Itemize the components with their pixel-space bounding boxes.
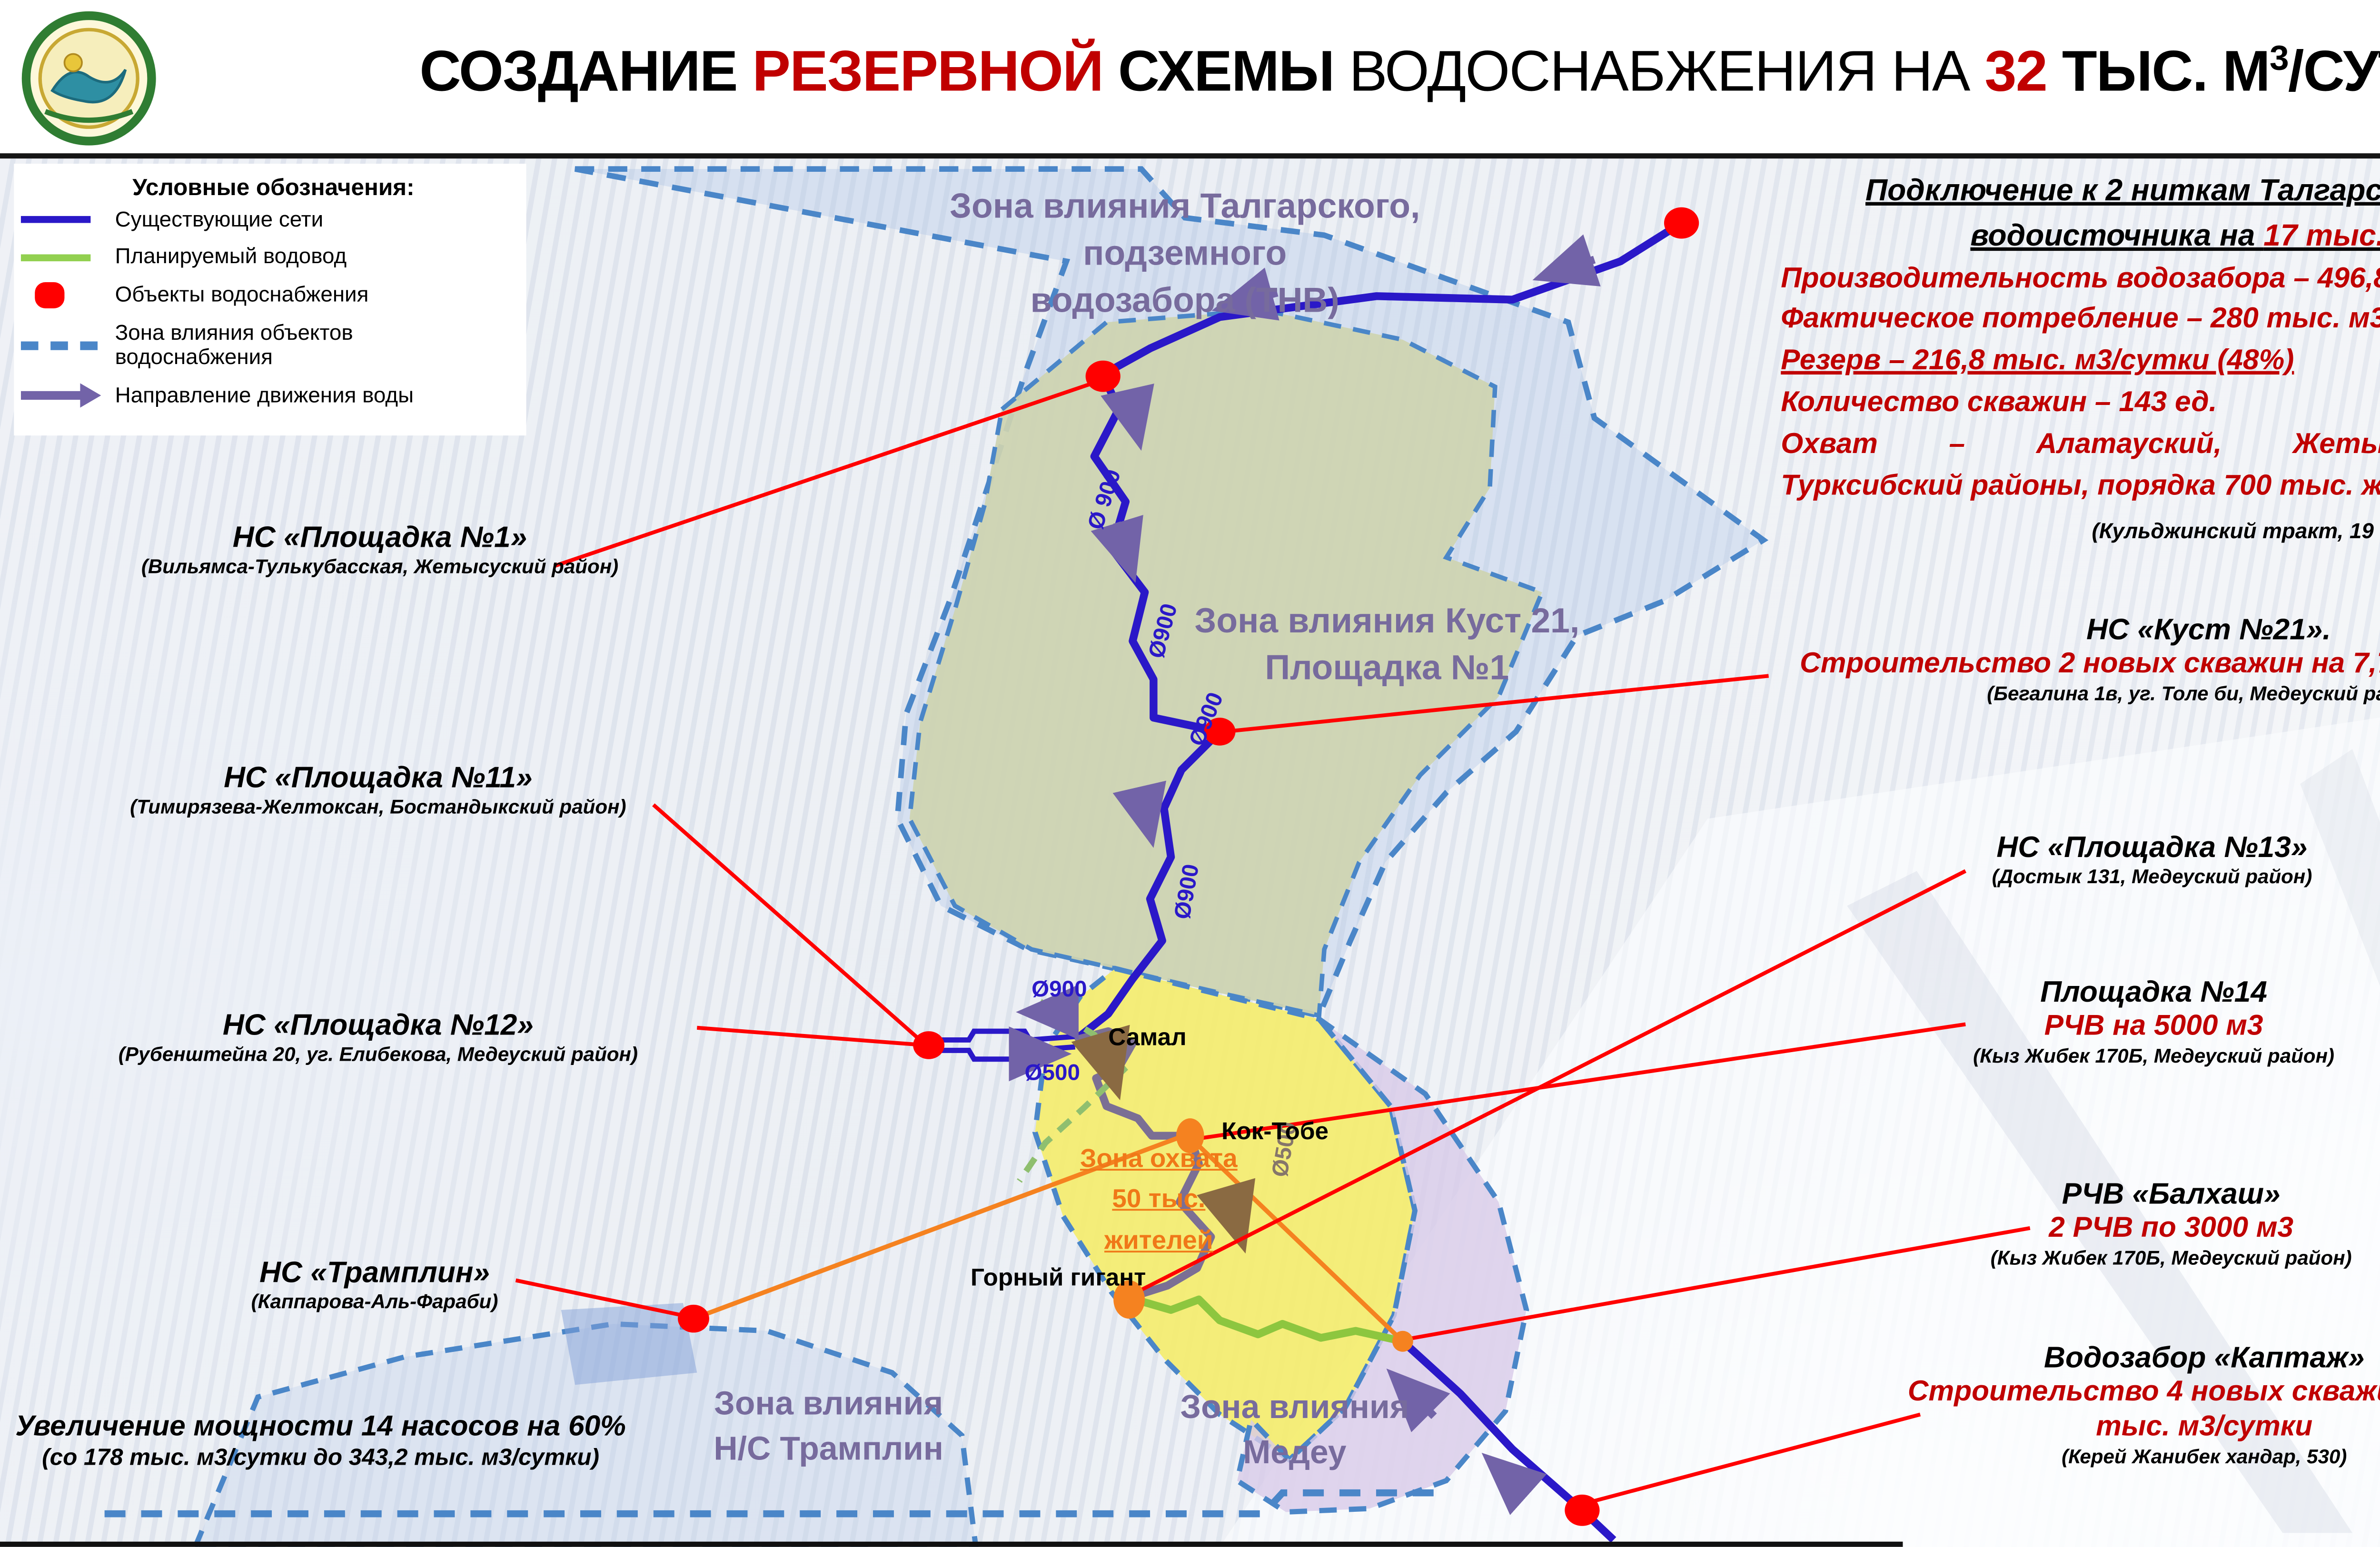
- coverage-line: жителей: [1104, 1225, 1213, 1255]
- zone-label-line: Зона влияния: [714, 1387, 943, 1423]
- title-word: ТЫС. М: [2047, 39, 2270, 103]
- callout-title: НС «Трамплин»: [192, 1256, 558, 1291]
- zone-label-tramplin: Зона влияния Н/С Трамплин: [676, 1383, 981, 1473]
- callout-subtitle: (Достык 131, Медеуский район): [1908, 867, 2380, 892]
- zone-label-medeu: Зона влияния Медеу: [1164, 1387, 1425, 1476]
- bottom-divider: [0, 1542, 1903, 1547]
- callout-highlight: 2 РЧВ по 3000 м3: [1952, 1213, 2380, 1247]
- zone-label-line: Зона влияния Куст 21,: [1195, 603, 1580, 641]
- legend-item-flow: Направление движения воды: [21, 383, 526, 408]
- callout-ns-tramplin: НС «Трамплин» (Каппарова-Аль-Фараби): [192, 1256, 558, 1316]
- callout-subtitle: (Кыз Жибек 170Б, Медеуский район): [1952, 1248, 2380, 1273]
- callout-title: Площадка №14: [1925, 975, 2380, 1011]
- info-note: (Кульджинский тракт, 19 км): [1781, 519, 2380, 543]
- info-coverage-1: Охват – Алатауский, Жетысуский, Медеуски…: [1781, 425, 2380, 467]
- callout-title: НС «Площадка №1»: [101, 521, 658, 557]
- info-consumption: Фактическое потребление – 280 тыс. м3/су…: [1781, 300, 2380, 342]
- flow-arrow-swatch: [21, 383, 115, 407]
- callout-highlight: РЧВ на 5000 м3: [1925, 1011, 2380, 1045]
- object-dot-swatch: [21, 282, 115, 308]
- page-title: СОЗДАНИЕ РЕЗЕРВНОЙ СХЕМЫ ВОДОСНАБЖЕНИЯ Н…: [174, 39, 2380, 105]
- callout-ns-ploshadka-11: НС «Площадка №11» (Тимирязева-Желтоксан,…: [90, 761, 665, 822]
- callout-title: НС «Куст №21».: [1751, 613, 2380, 649]
- pump-upgrade-note: Увеличение мощности 14 насосов на 60% (с…: [10, 1411, 631, 1470]
- pipe-diameter-label: Ø500: [1024, 1059, 1080, 1085]
- zone-label-line: Зона влияния Талгарского, подземного: [950, 188, 1420, 273]
- callout-vodozabor-kaptazh: Водозабор «Каптаж» Строительство 4 новых…: [1891, 1341, 2380, 1471]
- info-heading-line2: водоисточника на: [1970, 218, 2263, 253]
- title-number-red: 32: [1984, 39, 2047, 103]
- title-superscript: 3: [2270, 40, 2288, 79]
- zone-label-line: водозабора (ТНВ): [1031, 282, 1339, 321]
- city-emblem-logo: [21, 10, 157, 147]
- header: СОЗДАНИЕ РЕЗЕРВНОЙ СХЕМЫ ВОДОСНАБЖЕНИЯ Н…: [0, 0, 2380, 153]
- legend-item-planned: Планируемый водовод: [21, 245, 526, 270]
- callout-subtitle: (Каппарова-Аль-Фараби): [192, 1291, 558, 1317]
- slide: СОЗДАНИЕ РЕЗЕРВНОЙ СХЕМЫ ВОДОСНАБЖЕНИЯ Н…: [0, 0, 2380, 1547]
- zone-label-line: Зона влияния: [1180, 1390, 1409, 1427]
- info-heading-line1: Подключение к 2 ниткам Талгарского подзе…: [1865, 172, 2380, 207]
- header-divider: [0, 153, 2380, 158]
- info-reserve: Резерв – 216,8 тыс. м3/сутки (48%): [1781, 342, 2380, 384]
- legend-title: Условные обозначения:: [132, 174, 526, 200]
- callout-rchv-balkhash: РЧВ «Балхаш» 2 РЧВ по 3000 м3 (Кыз Жибек…: [1952, 1178, 2380, 1273]
- callout-ns-kust-21: НС «Куст №21». Строительство 2 новых скв…: [1751, 613, 2380, 709]
- callout-subtitle: (Кыз Жибек 170Б, Медеуский район): [1925, 1045, 2380, 1071]
- callout-ploshadka-14: Площадка №14 РЧВ на 5000 м3 (Кыз Жибек 1…: [1925, 975, 2380, 1071]
- legend-item-label: Планируемый водовод: [115, 245, 347, 270]
- pipe-diameter-label: Ø900: [1031, 975, 1087, 1002]
- title-word-red: РЕЗЕРВНОЙ: [752, 39, 1118, 103]
- callout-title: НС «Площадка №13»: [1908, 831, 2380, 867]
- callout-highlight: Строительство 2 новых скважин на 7,7 тыс…: [1751, 649, 2380, 683]
- zone-label-kust-21: Зона влияния Куст 21, Площадка №1: [1164, 599, 1610, 693]
- legend: Условные обозначения: Существующие сети …: [14, 164, 526, 435]
- legend-item-label: Зона влияния объектов водоснабжения: [115, 320, 446, 370]
- title-word: СОЗДАНИЕ: [419, 39, 752, 103]
- zone-label-line: Н/С Трамплин: [714, 1431, 943, 1468]
- callout-subtitle: (Рубенштейна 20, уг. Елибекова, Медеуски…: [73, 1044, 683, 1069]
- zone-label-line: Площадка №1: [1265, 650, 1509, 688]
- connection-info-block: Подключение к 2 ниткам Талгарского подзе…: [1781, 167, 2380, 543]
- callout-ns-ploshadka-12: НС «Площадка №12» (Рубенштейна 20, уг. Е…: [73, 1009, 683, 1069]
- zone-label-talgar-tnv: Зона влияния Талгарского, подземного вод…: [850, 185, 1519, 326]
- title-word: ВОДОСНАБЖЕНИЯ НА: [1349, 39, 1984, 103]
- planned-pipe-swatch: [21, 254, 115, 261]
- info-productivity: Производительность водозабора – 496,8 ты…: [1781, 259, 2380, 301]
- callout-title: РЧВ «Балхаш»: [1952, 1178, 2380, 1213]
- info-heading: Подключение к 2 ниткам Талгарского подзе…: [1781, 167, 2380, 258]
- callout-title: НС «Площадка №11»: [90, 761, 665, 797]
- legend-item-existing: Существующие сети: [21, 207, 526, 233]
- zone-label-line: Медеу: [1243, 1435, 1346, 1471]
- callout-title: НС «Площадка №12»: [73, 1009, 683, 1044]
- legend-item-zone: Зона влияния объектов водоснабжения: [21, 320, 526, 370]
- callout-highlight: Строительство 4 новых скважин на 7,3 тыс…: [1891, 1377, 2380, 1446]
- callout-subtitle: (Керей Жанибек хандар, 530): [1891, 1446, 2380, 1471]
- callout-subtitle: (Вильямса-Тулькубасская, Жетысуский райо…: [101, 556, 658, 581]
- pump-upgrade-line2: (со 178 тыс. м3/сутки до 343,2 тыс. м3/с…: [10, 1444, 631, 1470]
- legend-item-objects: Объекты водоснабжения: [21, 282, 526, 308]
- place-label-samal: Самал: [1108, 1023, 1186, 1051]
- title-word: СХЕМЫ: [1118, 39, 1349, 103]
- callout-subtitle: (Тимирязева-Желтоксан, Бостандыкский рай…: [90, 797, 665, 822]
- info-coverage-2: Турксибский районы, порядка 700 тыс. жит…: [1781, 467, 2380, 509]
- legend-item-label: Направление движения воды: [115, 383, 414, 408]
- callout-ns-ploshadka-13: НС «Площадка №13» (Достык 131, Медеуский…: [1908, 831, 2380, 891]
- legend-item-label: Объекты водоснабжения: [115, 282, 369, 307]
- coverage-line: 50 тыс.: [1112, 1185, 1205, 1214]
- title-word: /СУТКИ: [2288, 39, 2380, 103]
- legend-item-label: Существующие сети: [115, 207, 324, 233]
- callout-ns-ploshadka-1: НС «Площадка №1» (Вильямса-Тулькубасская…: [101, 521, 658, 581]
- coverage-zone-label: Зона охвата 50 тыс. жителей: [1056, 1139, 1261, 1261]
- info-heading-red: 17 тыс.: [2263, 218, 2380, 253]
- info-wells: Количество скважин – 143 ед.: [1781, 384, 2380, 425]
- coverage-line: Зона охвата: [1080, 1144, 1238, 1174]
- pump-upgrade-line1: Увеличение мощности 14 насосов на 60%: [10, 1411, 631, 1444]
- callout-subtitle: (Бегалина 1в, уг. Толе би, Медеуский рай…: [1751, 683, 2380, 709]
- callout-title: Водозабор «Каптаж»: [1891, 1341, 2380, 1377]
- zone-dashed-swatch: [21, 341, 115, 349]
- existing-network-swatch: [21, 217, 115, 224]
- place-label-gorny-gigant: Горный гигант: [971, 1263, 1146, 1291]
